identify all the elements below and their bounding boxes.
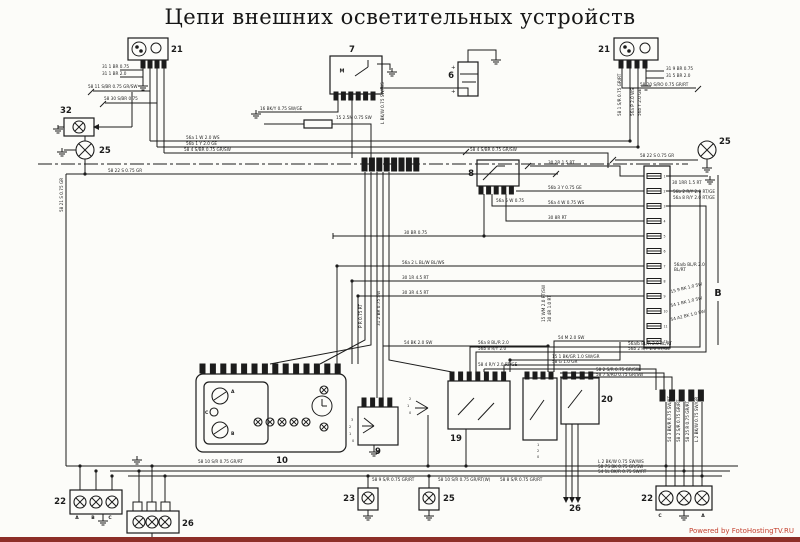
connector-pins (242, 364, 247, 373)
connector-pins (362, 398, 366, 406)
component-box (614, 38, 658, 60)
connector-pins (341, 92, 345, 100)
connector-pins (200, 364, 205, 373)
ground-icon (132, 456, 142, 464)
wire-label: 58 7 S/RO 0.75 GR/SW (596, 372, 643, 377)
wire (364, 418, 374, 426)
bulb-icon (628, 50, 631, 53)
wire-label: 58 10 S/R 0.75 GR/RT(W) (438, 477, 491, 482)
wire-label: 56b 8 R/Y 2.0 (478, 346, 507, 351)
wire-label: 56a 1 W 2.0 WS (186, 135, 220, 140)
wire (416, 401, 428, 408)
wire-label: 15 2.5M 0.75 SW (336, 115, 372, 120)
fuse-number: 1 (664, 175, 666, 179)
wire (355, 67, 368, 76)
component-number: 19 (450, 434, 462, 444)
bulb-icon (136, 46, 139, 49)
wire-label: 30 2R 1.5 RT (548, 160, 575, 165)
wire-label: M (340, 69, 345, 75)
connector-pins (494, 186, 498, 194)
wire-label: 58 20 S/RO 0.75 GR/RT (640, 82, 689, 87)
junction-dot (682, 469, 685, 472)
wire-label: 56b 2 R/Y 2.0 RT/GE (673, 189, 715, 194)
wire-label: BL/RT (674, 267, 686, 272)
wire-label: 58 22 S 0.75 GR (108, 168, 142, 173)
connector-pins (356, 92, 360, 100)
connector-pins (450, 372, 454, 380)
wire-label: 56a 8 BL/R 2.0 (478, 340, 509, 345)
bulb-icon (640, 43, 650, 53)
component-number: 21 (171, 45, 183, 55)
wire-label: 56a P 2.0 WS (630, 88, 635, 116)
connector-pins (294, 364, 299, 373)
fuse-number: 5 (664, 235, 666, 239)
component-box (523, 378, 557, 440)
junction-dot (83, 172, 86, 175)
junction-dot (78, 464, 81, 467)
wire-label: 56b 1 Y 2.0 GE (186, 141, 217, 146)
component-number: 8 (468, 169, 474, 179)
connector-pins (273, 364, 278, 373)
wire (214, 392, 226, 400)
wire-label: 3 (351, 418, 353, 422)
wire-label: 1 (349, 432, 351, 436)
wiring-diagram: ABC12345678910111231 1 BR 0.7531 1 BR 2.… (0, 0, 800, 542)
connector-pins (335, 364, 340, 373)
connector-pins (231, 364, 236, 373)
connector-pins (549, 372, 553, 379)
connector-pins (155, 60, 159, 68)
connector-pins (698, 390, 703, 401)
component-number: 7 (349, 45, 355, 55)
connector-pins (493, 372, 497, 380)
connector-pins (384, 158, 389, 171)
bulb-icon (140, 50, 143, 53)
wire-label: 58 21 S 0.75 GR (59, 178, 64, 212)
wire-label: P R 0.75 RT (358, 304, 363, 328)
wire-label: 56a 2 L BL/W BL/WS (402, 260, 445, 265)
connector-pins (563, 372, 567, 379)
wire-label: 58 1 S/R 0.75 GR/RT (617, 73, 622, 116)
wire-label: 58 4 S/BR 0.75 GR/SW (184, 147, 231, 152)
wire-label: 54 M 2.0 SW (558, 335, 584, 340)
wire-label: B (91, 515, 95, 521)
component-number: B (714, 288, 721, 299)
wire-label: 30 8R RT (548, 215, 567, 220)
component-box (358, 488, 378, 510)
wire-label: 2 (349, 425, 351, 429)
wire-label: L 2 BK/W 0.75 SW/GR (694, 397, 699, 442)
wire (568, 390, 582, 408)
connector-pins (619, 60, 623, 68)
fuse-number: 8 (664, 280, 666, 284)
wire-label: 56a 5 W 0.75 (496, 198, 524, 203)
junction-dot (335, 264, 338, 267)
connector-pins (509, 186, 513, 194)
connector-pins (371, 92, 375, 100)
wire-label: 56b Y 2.0 GE (637, 89, 642, 116)
gauge-letter: C (205, 410, 209, 416)
connector-pins (221, 364, 226, 373)
connector-pins (369, 158, 374, 171)
wire-label: 30 3R 4.5 RT (402, 290, 429, 295)
wire-label: 2 (537, 449, 539, 453)
wire-label: 58 25 R 0.75 GR/RT (685, 401, 690, 442)
wire (417, 408, 428, 415)
connector-pins (487, 186, 491, 194)
wire (214, 426, 226, 434)
wire-label: 54 1 BK 1.0 SW (670, 295, 703, 308)
component-box (448, 381, 510, 429)
fuse-number: 4 (664, 220, 666, 224)
component-number: 22 (641, 494, 653, 504)
bulb-icon (620, 42, 634, 56)
wire (506, 194, 644, 221)
connector-pins (627, 60, 631, 68)
wire-label: 56a 4 W 0.75 WS (548, 200, 584, 205)
component-box (561, 378, 599, 424)
connector-pins (210, 364, 215, 373)
connector-pins (414, 158, 419, 171)
junction-dot (350, 279, 353, 282)
component-number: 21 (598, 45, 610, 55)
junction-dot (94, 469, 97, 472)
connector-pins (148, 60, 152, 68)
component-number: 26 (569, 504, 581, 514)
wire-label: 58 10 S/R 0.75 GR/RT (198, 459, 243, 464)
connector-pins (252, 364, 257, 373)
connector-pins (484, 372, 488, 380)
wire-label: 31 5 BR 2.0 (666, 73, 691, 78)
component-number: 10 (276, 456, 288, 466)
fuse-number: 3 (664, 205, 666, 209)
component-number: 9 (375, 447, 381, 457)
wire-label: C (108, 515, 112, 521)
wire-label: L BK/W 0.75 SW/WS (380, 82, 385, 124)
connector-pins (133, 502, 142, 511)
bulb-icon (132, 42, 146, 56)
junction-dot (150, 464, 153, 467)
wire-label: 58 30 S/BR 0.75 (104, 96, 138, 101)
connector-pins (502, 186, 506, 194)
gauge-icon (210, 408, 218, 416)
junction-dot (664, 464, 667, 467)
ground-icon (251, 110, 261, 118)
arrowhead-icon (563, 497, 569, 503)
wire-label: A (75, 515, 79, 521)
junction-dot (366, 474, 369, 477)
fuse-number: 11 (664, 325, 668, 329)
ground-icon (679, 512, 689, 520)
fuse-number: 10 (664, 310, 668, 314)
arrowhead-icon (575, 497, 581, 503)
connector-pins (580, 372, 584, 379)
arrowhead-icon (569, 497, 575, 503)
connector-pins (388, 398, 392, 406)
connector-pins (572, 372, 576, 379)
wire-label: 56b 2 R/Y 2.0 RT/GE (628, 346, 670, 351)
wire-label: 2 (409, 397, 411, 401)
wire-label: 58 9 S/R 0.75 GR/RT (372, 477, 415, 482)
junction-dot (636, 145, 639, 148)
wire-label: 16 BK/Y 0.75 SW/GE (260, 106, 303, 111)
component-box (128, 38, 168, 60)
connector-pins (479, 186, 483, 194)
component-number: 6 (448, 71, 454, 81)
junction-dot (464, 464, 467, 467)
junction-dot (137, 469, 140, 472)
connector-pins (304, 364, 309, 373)
ground-icon (705, 176, 715, 184)
connector-pins (399, 158, 404, 171)
junction-dot (426, 464, 429, 467)
ground-icon (702, 164, 712, 172)
connector-pins (541, 372, 545, 379)
wire-label: 30 BR 0.75 (404, 230, 427, 235)
junction-dot (482, 234, 485, 237)
connector-pins (314, 364, 319, 373)
junction-dot (628, 139, 631, 142)
wire-label: 56b 3 Y 0.75 GE (548, 185, 582, 190)
connector-pins (533, 372, 537, 379)
wire-label: 31 1 BR 2.0 (102, 71, 127, 76)
wire-label: 54 1L BK/R 0.75 SW/RT (598, 469, 647, 474)
ground-icon (57, 148, 67, 156)
wire-label: 31 9 BR 0.75 (666, 66, 693, 71)
connector-pins (141, 60, 145, 68)
connector-pins (525, 372, 529, 379)
wire-label: C (658, 513, 662, 519)
connector-pins (147, 502, 156, 511)
wire-label: 15 WM 2.0 RT/SW (541, 285, 546, 322)
wire-label: 58 2 S/R 0.75 GR/RT (676, 399, 681, 442)
wire-label: 58 G 1.0 GR (552, 359, 577, 364)
connector-pins (589, 372, 593, 379)
gauge-letter: A (231, 389, 235, 395)
wire (530, 400, 544, 420)
wire-label: 0 (352, 439, 354, 443)
connector-pins (283, 364, 288, 373)
continuation-slash (100, 101, 106, 107)
wire-label: 58 4 R/Y 2.0 RT/GE (478, 362, 518, 367)
wire (483, 166, 497, 180)
ground-icon (98, 517, 108, 525)
wire-label: 31 2 BR 0.75 SW (376, 291, 381, 326)
connector-pins (406, 158, 411, 171)
component-number: 25 (719, 137, 731, 147)
component-number: 22 (54, 497, 66, 507)
footer-bar (0, 537, 800, 542)
ground-icon (53, 125, 63, 133)
junction-dot (700, 474, 703, 477)
fuse-number: 9 (664, 295, 666, 299)
connector-pins (325, 364, 330, 373)
wire-label: 30 4R 1.0 RT (547, 295, 552, 322)
connector-pins (262, 364, 267, 373)
wire (363, 426, 374, 433)
ground-icon (424, 512, 434, 520)
connector-pins (660, 390, 665, 401)
connector-pins (502, 372, 506, 380)
component-number: 32 (60, 106, 72, 116)
junction-dot (546, 344, 549, 347)
connector-pins (371, 398, 375, 406)
ground-icon (387, 68, 397, 76)
junction-dot (427, 474, 430, 477)
bulb-icon (624, 46, 627, 49)
connector-pins (377, 158, 382, 171)
component-box (304, 120, 332, 128)
gauge-letter: B (231, 431, 235, 437)
fuse-number: 6 (664, 250, 666, 254)
ground-icon (491, 56, 501, 64)
continuation-slash (695, 86, 701, 92)
wire-label: 31 1 BR 0.75 (102, 64, 129, 69)
connector-pins (635, 60, 639, 68)
ground-icon (363, 512, 373, 520)
component-number: 20 (601, 395, 613, 405)
wire-label: 58 4 S/BR 0.75 GR/SW (470, 147, 517, 152)
fuse-number: 2 (664, 190, 666, 194)
wire-label: 15 9 BK 1.0 SW (670, 281, 703, 294)
watermark-text: Powered by FotoHostingTV.RU (689, 527, 794, 535)
continuation-slash (463, 149, 469, 155)
ground-icon (138, 82, 148, 90)
connector-pins (362, 158, 367, 171)
scanned-wiring-diagram-page: Цепи внешних осветительных устройств ABC… (0, 0, 800, 542)
connector-pins (467, 372, 471, 380)
wire-label: 58 8 S/R 0.75 GR/RT (500, 477, 543, 482)
fuse-number: 7 (664, 265, 666, 269)
wire-label: 54 BK 2.0 SW (404, 340, 432, 345)
connector-pins (459, 372, 463, 380)
junction-dot (110, 474, 113, 477)
wire (478, 403, 494, 420)
wire-label: 58 22 S 0.75 GR (640, 153, 674, 158)
connector-pins (161, 502, 170, 511)
diagram-title: Цепи внешних осветительных устройств (0, 5, 800, 29)
component-number: 26 (182, 519, 194, 529)
wire (560, 377, 672, 390)
wire-label: A (701, 513, 705, 519)
connector-pins (349, 92, 353, 100)
wire-label: 1 (537, 443, 539, 447)
connector-pins (643, 60, 647, 68)
continuation-slash (88, 89, 94, 95)
wire (377, 64, 390, 70)
connector-pins (679, 390, 684, 401)
wire-label: 30 1R 4.5 RT (402, 275, 429, 280)
wire-label: 30 1RR 1.5 RT (672, 180, 702, 185)
connector-pins (476, 372, 480, 380)
connector-pins (334, 92, 338, 100)
component-number: 25 (99, 146, 111, 156)
wire-label: 54 3 BK/R 0.75 SW/RT (667, 396, 672, 442)
component-number: 23 (343, 494, 355, 504)
wire-label: 1 (407, 404, 409, 408)
wire-label: 0 (409, 411, 411, 415)
connector-pins (379, 398, 383, 406)
wire-label: 56a 8 R/Y 2.0 RT/GE (673, 195, 715, 200)
bulb-icon (151, 43, 161, 53)
component-box (419, 488, 439, 510)
wire-label: 0 (537, 455, 539, 459)
component-number: 25 (443, 494, 455, 504)
wire (270, 172, 371, 364)
connector-pins (392, 158, 397, 171)
junction-dot (163, 474, 166, 477)
wire-label: + (451, 89, 456, 95)
wire-label: 58 11 S/BR 0.75 GR/SW (88, 84, 138, 89)
connector-pins (364, 92, 368, 100)
connector-pins (162, 60, 166, 68)
wire (458, 398, 474, 415)
junction-dot (356, 294, 359, 297)
